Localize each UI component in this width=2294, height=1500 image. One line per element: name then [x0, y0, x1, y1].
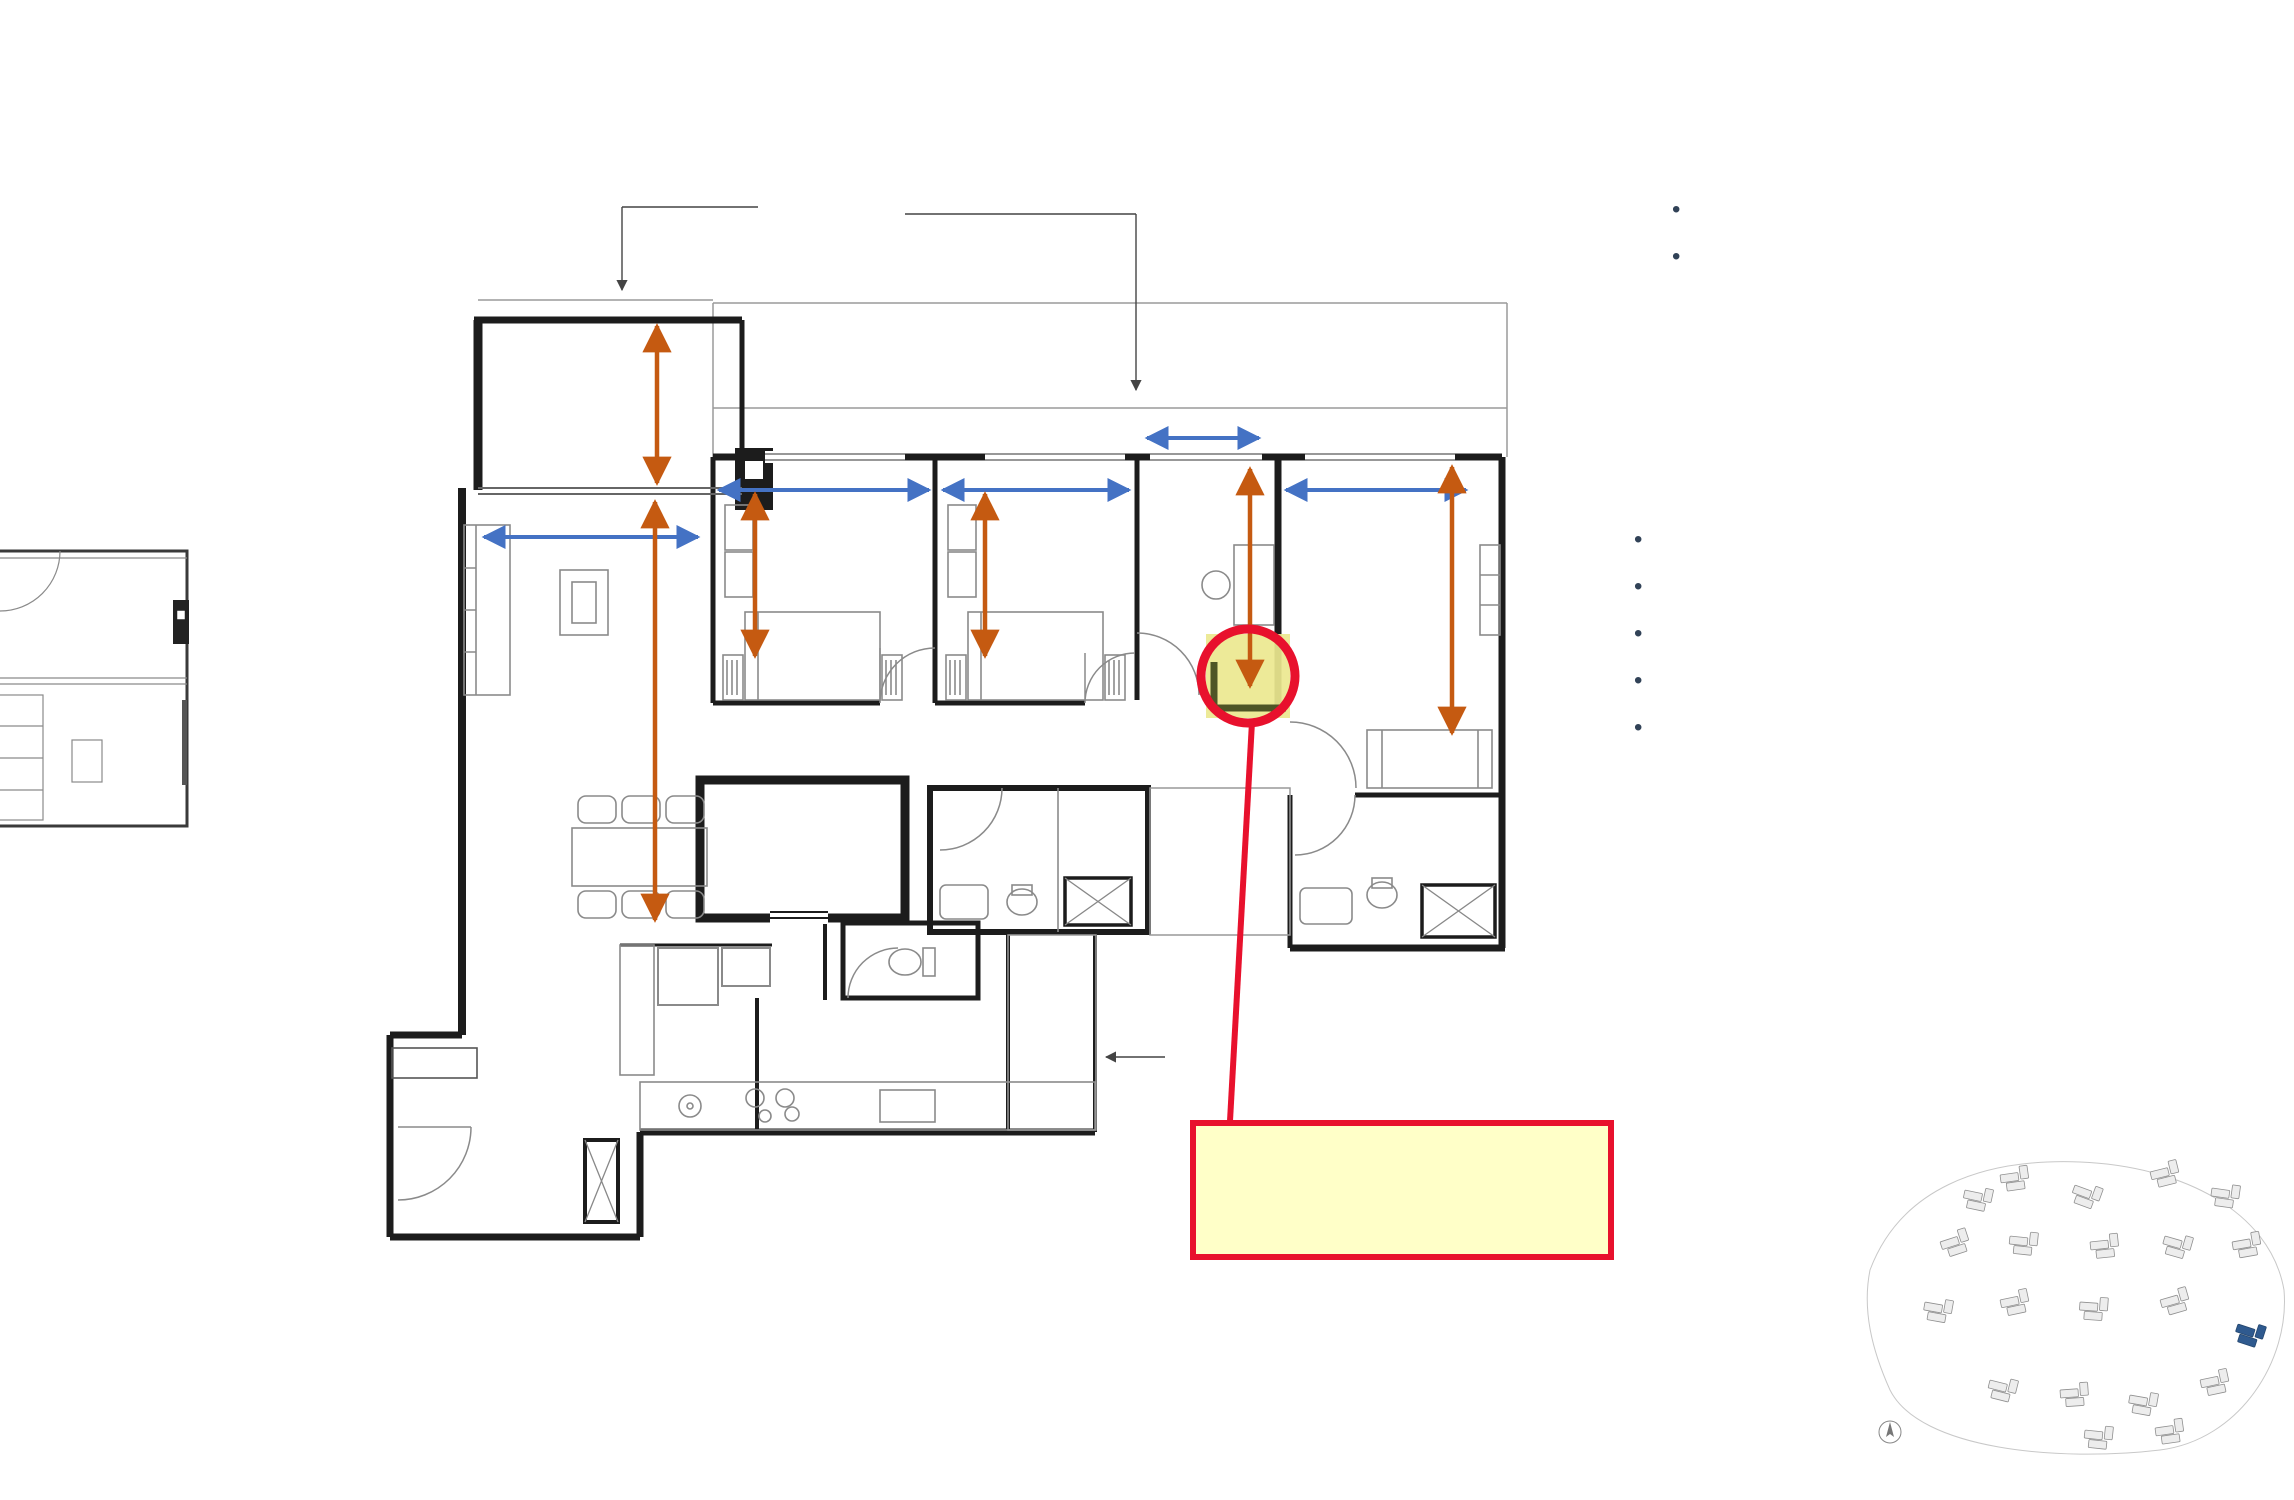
bullet-icon: •	[1634, 704, 1693, 751]
list-item: •	[1634, 610, 1693, 657]
finishes-list: • • • • •	[1634, 516, 1693, 751]
bullet-icon: •	[1634, 563, 1693, 610]
dim-arrows-orange	[655, 326, 1452, 920]
bullet-icon: •	[1672, 186, 1734, 233]
hs-door-gap	[770, 908, 828, 924]
list-item: •	[1634, 657, 1693, 704]
dbst-niche	[392, 1048, 477, 1078]
floor-plan	[380, 190, 1520, 1270]
highlighted-block	[2233, 1318, 2267, 1349]
list-item: •	[1672, 233, 1734, 280]
door-block	[744, 460, 764, 480]
callout-box	[1190, 1120, 1614, 1260]
mini-plan-thin-lines	[0, 551, 187, 820]
bullet-icon: •	[1634, 657, 1693, 704]
list-item: •	[1634, 516, 1693, 563]
mini-plan-window	[182, 700, 187, 785]
building-clusters	[1922, 1159, 2262, 1449]
appliance-list: • •	[1672, 186, 1734, 280]
rc-ledge-outline	[478, 300, 1507, 457]
furniture	[464, 505, 1500, 1130]
parktown-logo	[2112, 24, 2282, 32]
mini-plan-pillar	[173, 600, 189, 644]
key-plan	[1860, 1150, 2294, 1495]
mini-unit-plan	[0, 540, 210, 870]
mini-plan-door-block	[177, 610, 186, 620]
compass-icon	[1879, 1421, 1901, 1443]
bullet-icon: •	[1634, 610, 1693, 657]
mini-plan-walls	[0, 551, 187, 826]
bullet-icon: •	[1672, 233, 1734, 280]
bullet-icon: •	[1634, 516, 1693, 563]
list-item: •	[1634, 563, 1693, 610]
list-item: •	[1672, 186, 1734, 233]
list-item: •	[1634, 704, 1693, 751]
